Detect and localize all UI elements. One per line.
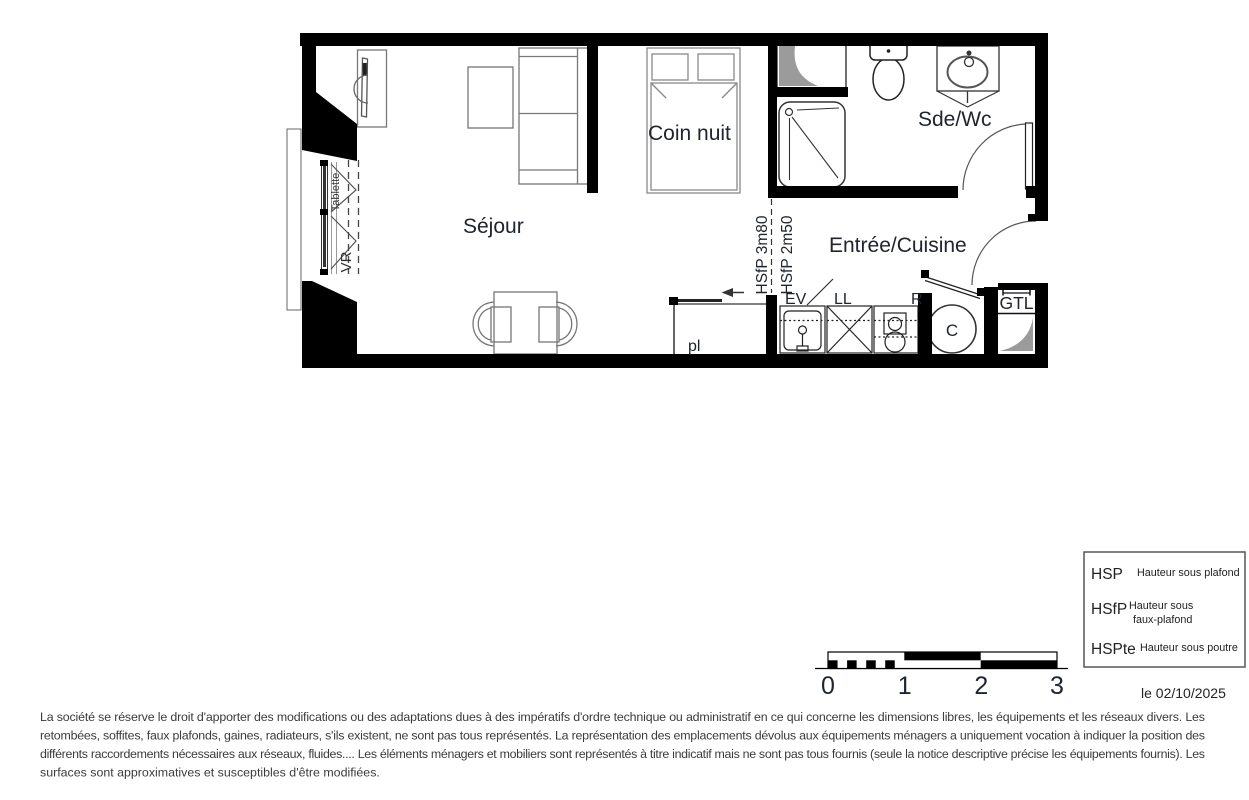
disclaimer-line-1: La société se réserve le droit d'apporte… <box>40 710 1205 724</box>
pillow <box>698 54 734 80</box>
dining-table-and-chairs <box>473 292 577 354</box>
side-table <box>468 67 513 128</box>
label-ll: LL <box>834 291 852 308</box>
scale-tick-2: 2 <box>974 672 988 700</box>
gtl-shading <box>1000 318 1033 351</box>
scale-ticks: 0 1 2 3 <box>821 672 1064 700</box>
door-hinge-block <box>921 270 929 278</box>
toilet <box>870 42 907 100</box>
wall-right-upper <box>1035 33 1048 221</box>
window-node <box>320 160 328 166</box>
label-r: R <box>911 291 923 308</box>
window-glazing <box>323 166 326 209</box>
wall-bathroom-south <box>768 186 958 198</box>
mattress-fold <box>722 83 737 98</box>
legend-desc-hsfp-line1: Hauteur sous <box>1129 600 1194 612</box>
bed <box>647 48 740 193</box>
gtl-top-bar <box>998 283 1035 290</box>
water-heater <box>925 277 981 353</box>
sofa <box>519 48 588 184</box>
legend-desc-hspte: Hauteur sous poutre <box>1140 642 1238 654</box>
bathroom-door-arc <box>963 124 1026 190</box>
appliance-r <box>874 306 918 353</box>
window-node <box>320 209 328 215</box>
legend-desc-hsp: Hauteur sous plafond <box>1137 567 1240 579</box>
shower-tray <box>779 102 845 187</box>
bay-outer-face <box>287 129 301 310</box>
scale-checker <box>828 660 838 668</box>
washing-machine-ll <box>827 306 872 353</box>
sink-flap-line <box>807 279 833 305</box>
wall-duct-bottom <box>775 87 848 97</box>
washbasin <box>937 46 999 107</box>
toilet-bowl <box>873 58 904 100</box>
label-pl: pl <box>688 338 700 355</box>
flush-button <box>887 49 891 53</box>
label-ev: EV <box>785 291 807 308</box>
wall-top <box>300 33 1048 46</box>
kitchen-post <box>766 295 777 354</box>
room-label-sde-wc: Sde/Wc <box>918 108 992 131</box>
scale-tick-0: 0 <box>821 672 835 700</box>
scale-segment <box>904 652 980 660</box>
mattress-fold <box>651 83 666 98</box>
floor-plan-drawing: Séjour Coin nuit Sde/Wc Entrée/Cuisine T… <box>0 0 1249 800</box>
legend-abbr-hsp: HSP <box>1091 566 1123 583</box>
door-jamb <box>1028 214 1035 221</box>
faucet <box>967 51 972 56</box>
wall-sejour-coin-nuit <box>587 33 598 193</box>
disclaimer-line-4: surfaces sont approximatives et suscepti… <box>40 766 380 780</box>
floor-plan-page: Séjour Coin nuit Sde/Wc Entrée/Cuisine T… <box>0 0 1249 800</box>
kitchen-post <box>984 287 998 354</box>
legend-abbr-hspte: HSPte <box>1091 641 1136 658</box>
room-label-entree-cuisine: Entrée/Cuisine <box>829 234 967 257</box>
scale-checker <box>885 660 895 668</box>
scale-bar: 0 1 2 3 <box>815 652 1068 700</box>
room-label-sejour: Séjour <box>463 215 524 238</box>
label-gtl: GTL <box>999 293 1033 313</box>
scale-checker <box>847 660 857 668</box>
label-vr: VR <box>338 251 355 272</box>
legend-box: HSP Hauteur sous plafond HSfP Hauteur so… <box>1084 552 1245 701</box>
closet-track-cap <box>669 297 678 305</box>
wall-left-lower <box>302 281 357 368</box>
legend-desc-hsfp-line2: faux-plafond <box>1133 614 1192 626</box>
pillow <box>652 54 688 80</box>
bathroom-door-leaf <box>1026 123 1033 189</box>
wall-coin-nuit-bathroom <box>768 33 777 197</box>
scale-segment <box>981 660 1057 668</box>
label-c: C <box>946 321 958 340</box>
disclaimer-line-3: différents raccordements nécessaires aux… <box>40 747 1205 761</box>
scale-tick-1: 1 <box>898 672 912 700</box>
slide-arrow-head <box>722 288 734 297</box>
tv-stand <box>354 50 387 127</box>
label-hsfp-3m80: HSfP 3m80 <box>754 215 771 294</box>
legend-abbr-hsfp: HSfP <box>1091 601 1127 618</box>
window-glazing <box>323 215 326 267</box>
scale-checker <box>866 660 876 668</box>
disclaimer-line-2: retombées, soffites, faux plafonds, gain… <box>40 729 1205 743</box>
shower-drain <box>786 109 793 116</box>
chair-seat <box>539 307 559 342</box>
label-hsfp-2m50: HSfP 2m50 <box>779 215 796 294</box>
plan-date: le 02/10/2025 <box>1141 685 1226 701</box>
sejour-furniture <box>354 48 588 354</box>
wall-bottom <box>348 354 1048 368</box>
window-node <box>320 269 328 275</box>
entry-door-arc <box>972 221 1036 285</box>
disclaimer: La société se réserve le droit d'apporte… <box>40 710 1205 780</box>
door-hinge-block <box>977 288 985 296</box>
door-jamb <box>1026 186 1035 198</box>
doors <box>963 123 1036 285</box>
wall-left-upper <box>302 33 357 161</box>
scale-tick-3: 3 <box>1050 672 1064 700</box>
label-tablette: Tablette <box>330 173 342 212</box>
room-label-coin-nuit: Coin nuit <box>648 122 731 145</box>
